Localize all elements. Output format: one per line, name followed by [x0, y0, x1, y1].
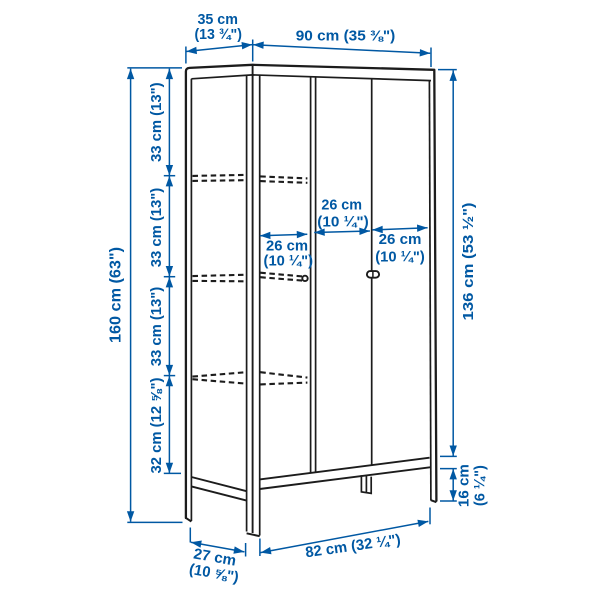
svg-text:136 cm (53 ½"): 136 cm (53 ½") — [460, 203, 477, 321]
svg-text:160 cm (63"): 160 cm (63") — [108, 247, 125, 343]
svg-text:33 cm (13"): 33 cm (13") — [148, 82, 165, 162]
svg-text:16 cm: 16 cm — [455, 464, 472, 507]
svg-text:33 cm (13"): 33 cm (13") — [148, 188, 165, 268]
svg-text:26 cm: 26 cm — [321, 197, 362, 214]
svg-text:33 cm (13"): 33 cm (13") — [148, 287, 165, 367]
svg-text:(10 ¼"): (10 ¼") — [264, 253, 314, 270]
svg-text:(13 ¾"): (13 ¾") — [194, 26, 242, 43]
svg-text:(6 ¼"): (6 ¼") — [472, 465, 489, 506]
svg-text:(10 ¼"): (10 ¼") — [317, 214, 368, 231]
svg-text:32 cm (12 ⅝"): 32 cm (12 ⅝") — [148, 378, 165, 474]
svg-text:26 cm: 26 cm — [379, 231, 422, 248]
svg-text:(10 ¼"): (10 ¼") — [375, 248, 425, 265]
svg-text:90 cm (35 ⅜"): 90 cm (35 ⅜") — [296, 27, 396, 44]
